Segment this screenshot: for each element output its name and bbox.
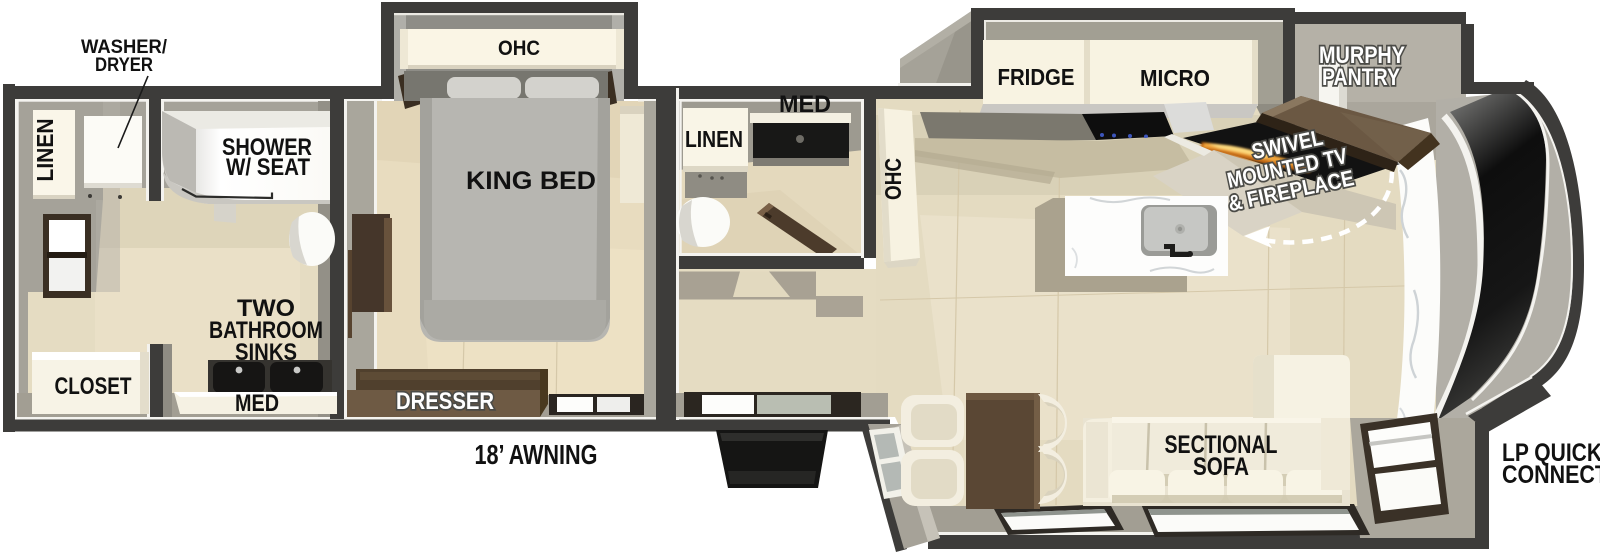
svg-text:MED: MED xyxy=(235,390,279,417)
svg-text:DRESSER: DRESSER xyxy=(396,388,494,415)
svg-text:CLOSET: CLOSET xyxy=(55,373,132,400)
svg-text:OHC: OHC xyxy=(880,158,906,200)
svg-text:FRIDGE: FRIDGE xyxy=(998,64,1075,90)
svg-text:OHC: OHC xyxy=(498,37,540,60)
svg-text:LINEN: LINEN xyxy=(685,126,743,152)
svg-text:18’ AWNING: 18’ AWNING xyxy=(475,439,598,470)
svg-text:KING BED: KING BED xyxy=(466,167,596,195)
svg-text:SOFA: SOFA xyxy=(1193,453,1249,481)
svg-text:MED: MED xyxy=(779,91,831,118)
svg-text:CONNECT: CONNECT xyxy=(1502,461,1600,489)
svg-text:SINKS: SINKS xyxy=(235,339,297,366)
svg-text:DRYER: DRYER xyxy=(95,55,153,76)
svg-text:MICRO: MICRO xyxy=(1140,65,1210,91)
svg-text:PANTRY: PANTRY xyxy=(1322,64,1400,91)
svg-text:LINEN: LINEN xyxy=(32,119,58,182)
svg-text:W/ SEAT: W/ SEAT xyxy=(226,154,310,181)
